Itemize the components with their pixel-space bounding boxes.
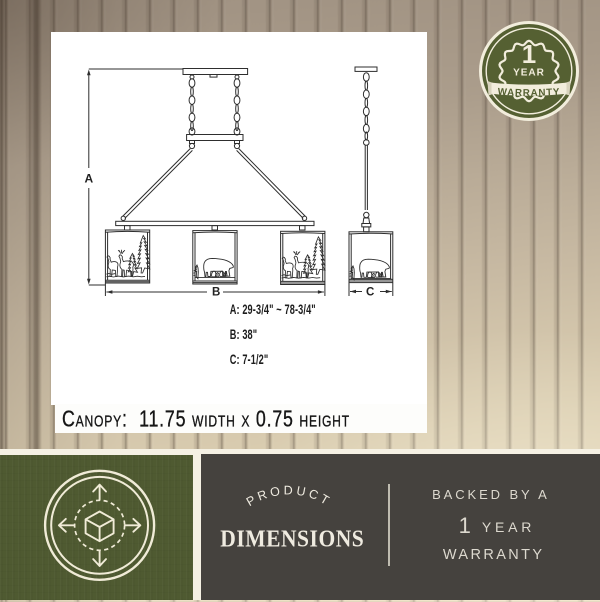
svg-text:PRODUCT: PRODUCT: [244, 483, 334, 509]
svg-text:B: 38": B: 38": [230, 328, 258, 342]
svg-text:C: C: [366, 287, 374, 299]
svg-text:YEAR: YEAR: [513, 67, 545, 78]
svg-text:C: 7-1/2": C: 7-1/2": [230, 353, 269, 367]
svg-text:B: B: [212, 287, 220, 299]
svg-text:A: 29-3/4" ~ 78-3/4": A: 29-3/4" ~ 78-3/4": [230, 303, 316, 317]
svg-text:DIMENSIONS: DIMENSIONS: [220, 526, 364, 553]
svg-text:Canopy: 11.75 width x 0.75 he: Canopy: 11.75 width x 0.75 height: [62, 406, 350, 432]
svg-text:A: A: [85, 172, 94, 186]
svg-text:WARRANTY: WARRANTY: [497, 87, 560, 99]
svg-text:1: 1: [522, 39, 536, 69]
